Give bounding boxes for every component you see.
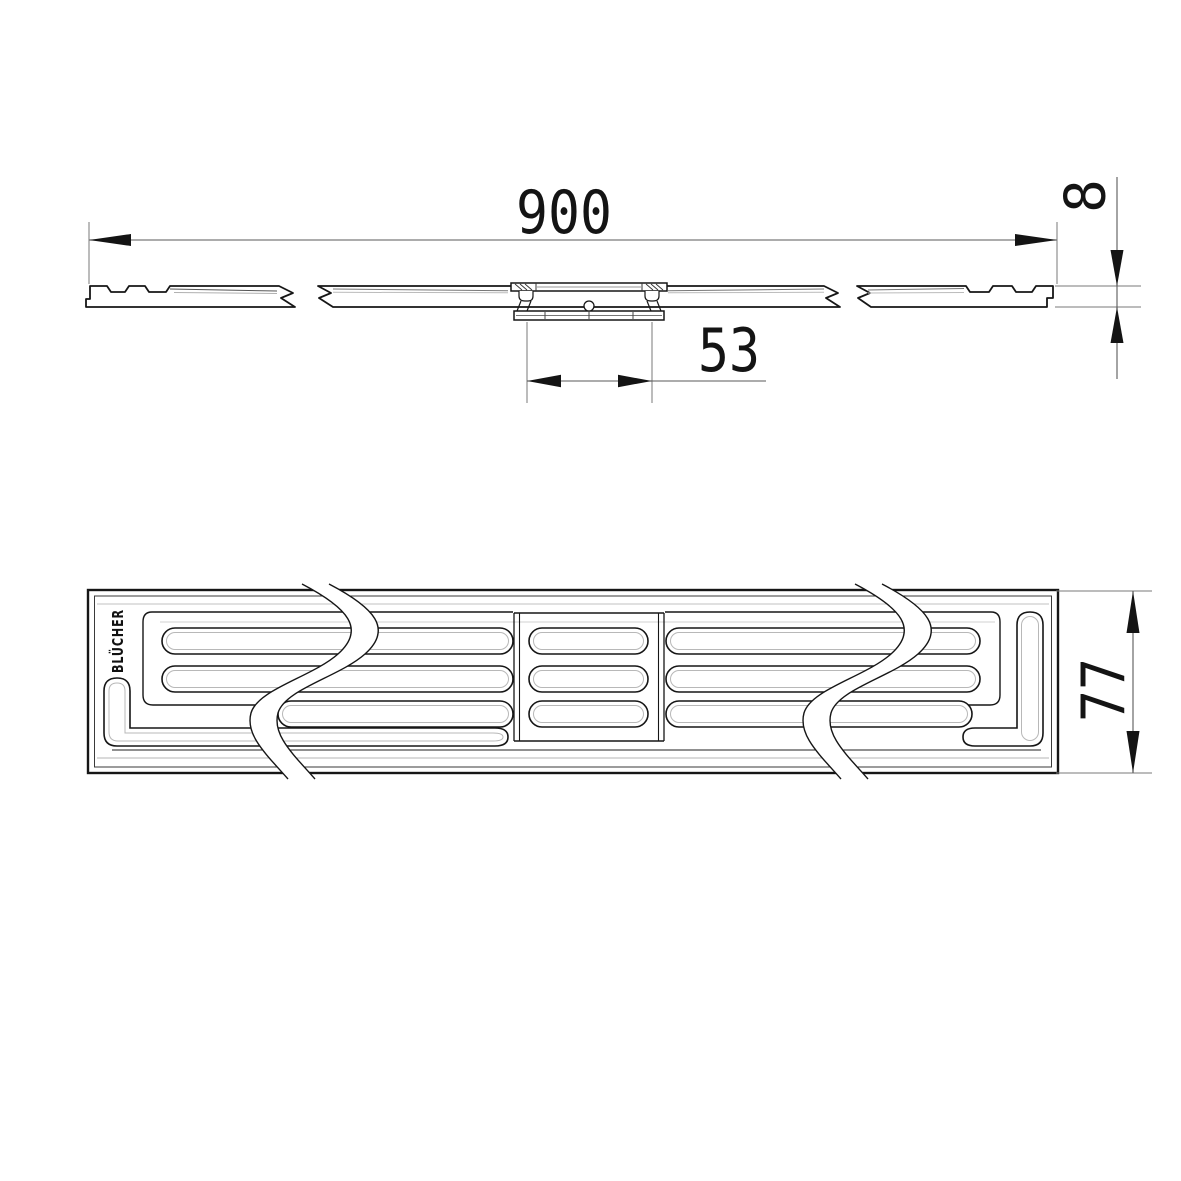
profile-shading-line (868, 293, 964, 294)
side-section-view: 900 8 53 (86, 177, 1141, 403)
arrowhead-down (1111, 250, 1124, 286)
grate-slot (529, 628, 648, 654)
grate-slot (666, 628, 980, 654)
dimension-width-value: 77 (1069, 658, 1139, 722)
grate-slot (529, 666, 648, 692)
dimension-edge-thickness: 8 (1054, 177, 1142, 379)
grate-slot (162, 628, 513, 654)
profile-shading-line (333, 292, 508, 293)
profile-segment-right (857, 286, 1053, 307)
arrowhead-right (618, 375, 652, 387)
arrowhead-left (89, 234, 131, 246)
grate-slot (278, 701, 513, 727)
arrowhead-down (1127, 731, 1140, 773)
dimension-length-value: 900 (516, 178, 612, 248)
profile-shading-line (668, 292, 824, 293)
arrowhead-up (1111, 307, 1124, 343)
grate-slot (529, 701, 648, 727)
grate-plan-view: BLÜCHER 77 (88, 584, 1152, 779)
grate-slot (666, 666, 980, 692)
brand-logo-text: BLÜCHER (108, 609, 127, 673)
arrowhead-up (1127, 591, 1140, 633)
dimension-outlet-value: 53 (698, 316, 760, 386)
arrowhead-left (527, 375, 561, 387)
dimension-outlet-width: 53 (527, 316, 766, 403)
dimension-overall-length: 900 (89, 178, 1057, 284)
dimension-grate-width: 77 (1056, 591, 1152, 773)
centre-panel (514, 613, 664, 741)
technical-drawing-canvas: 900 8 53 (0, 0, 1181, 1181)
arrowhead-right (1015, 234, 1057, 246)
fixing-hole (584, 301, 594, 311)
dimension-thickness-value: 8 (1054, 179, 1119, 213)
